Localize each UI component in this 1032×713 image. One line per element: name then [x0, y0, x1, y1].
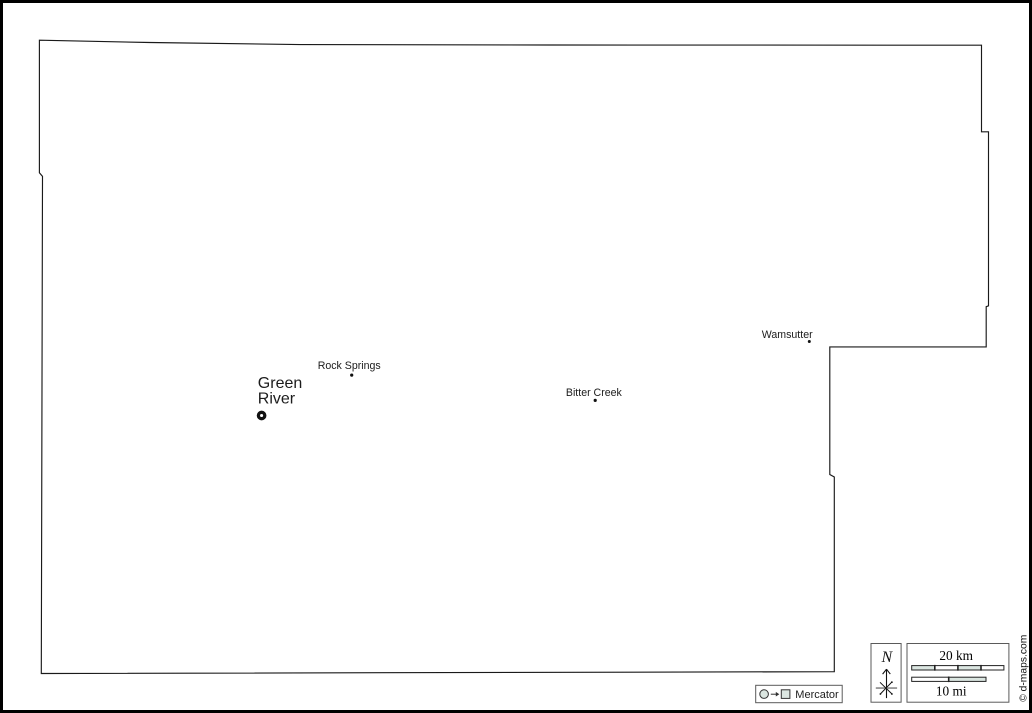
- svg-text:Wamsutter: Wamsutter: [762, 329, 813, 341]
- svg-text:Bitter Creek: Bitter Creek: [566, 387, 623, 399]
- svg-text:20 km: 20 km: [939, 648, 973, 663]
- svg-text:Rock Springs: Rock Springs: [318, 360, 381, 372]
- svg-text:Mercator: Mercator: [795, 689, 839, 701]
- svg-text:© d-maps.com: © d-maps.com: [1018, 635, 1029, 702]
- svg-text:Green: Green: [258, 375, 302, 392]
- svg-text:10 mi: 10 mi: [936, 684, 967, 699]
- svg-text:River: River: [258, 391, 296, 408]
- svg-text:N: N: [881, 649, 894, 666]
